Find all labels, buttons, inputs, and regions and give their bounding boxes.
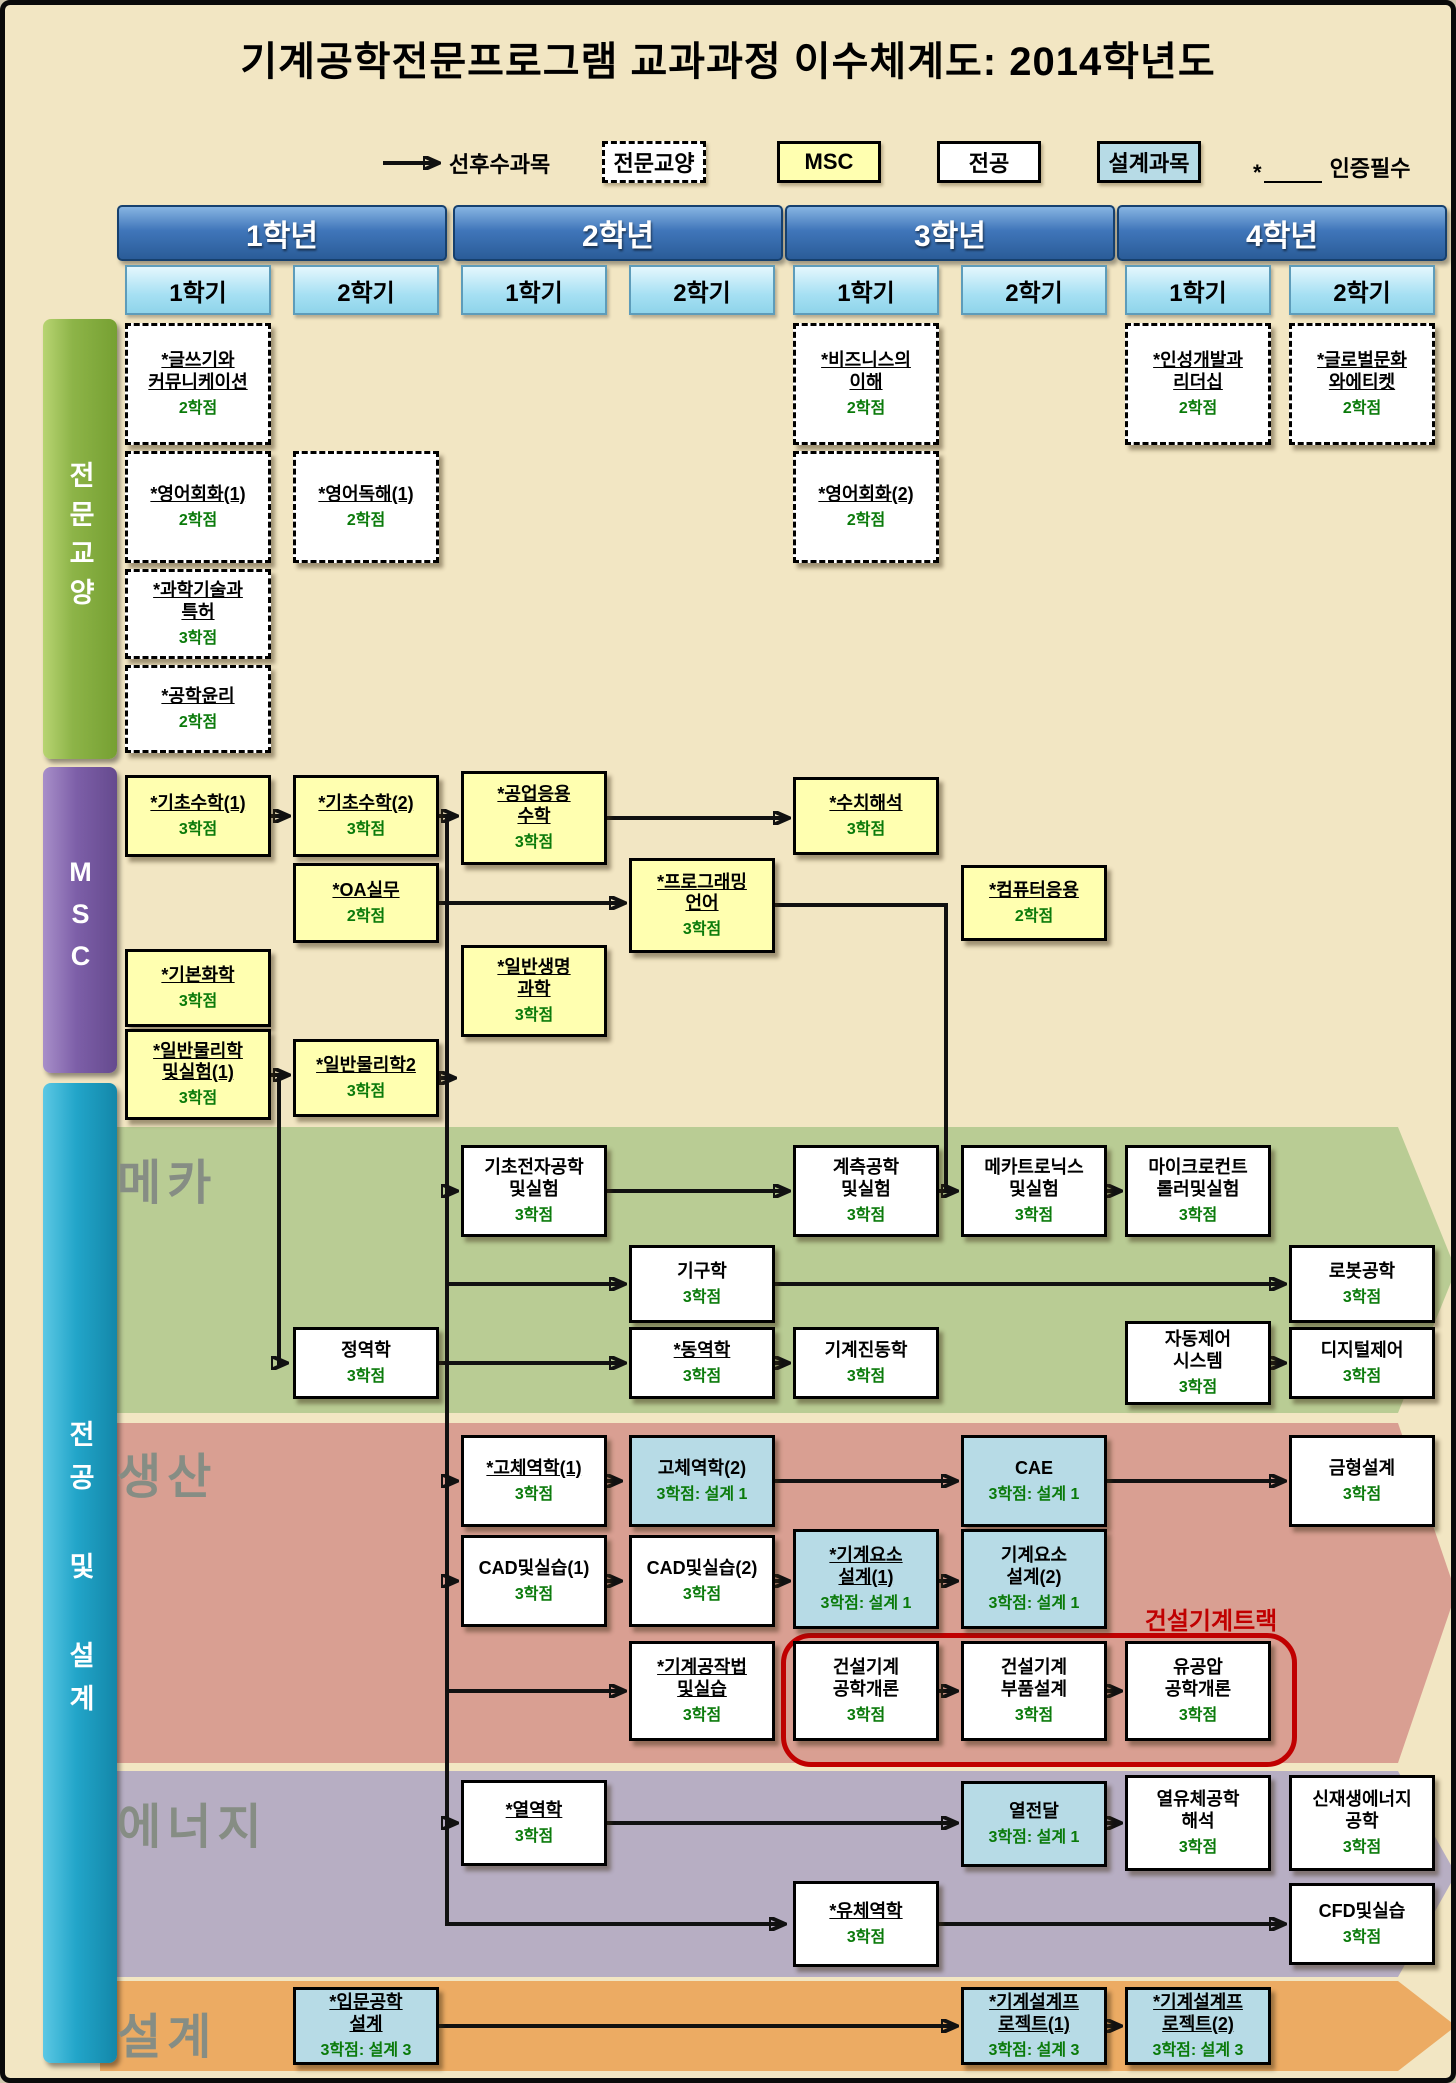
course-box: *입문공학 설계 3학점: 설계 3 xyxy=(293,1987,439,2065)
course-box: *공학윤리 2학점 xyxy=(125,665,271,753)
course-box: 마이크로컨트 롤러및실험 3학점 xyxy=(1125,1145,1271,1237)
legend-msc: MSC xyxy=(777,141,881,183)
course-title: 자동제어 시스템 xyxy=(1165,1329,1231,1371)
course-title: 유공압 공학개론 xyxy=(1165,1657,1231,1699)
course-title: *공업응용 수학 xyxy=(497,784,570,826)
course-box: CAE 3학점: 설계 1 xyxy=(961,1435,1107,1527)
course-credit: 3학점 xyxy=(683,915,721,939)
course-credit: 3학점 xyxy=(847,815,885,839)
course-credit: 3학점 xyxy=(1343,1923,1381,1947)
course-title: 건설기계 공학개론 xyxy=(833,1657,899,1699)
sidebar-label: MSC xyxy=(65,857,96,983)
course-title: *공학윤리 xyxy=(161,686,234,707)
band-label-mecha: 메카 xyxy=(117,1143,217,1213)
course-credit: 3학점 xyxy=(1015,1201,1053,1225)
course-box: 기구학 3학점 xyxy=(629,1245,775,1323)
course-credit: 3학점 xyxy=(179,624,217,648)
course-box: *글쓰기와 커뮤니케이션 2학점 xyxy=(125,323,271,445)
band-label-production: 생산 xyxy=(117,1437,217,1507)
course-box: *과학기술과 특허 3학점 xyxy=(125,569,271,659)
course-credit: 2학점 xyxy=(179,506,217,530)
course-box: *일반물리학2 3학점 xyxy=(293,1039,439,1117)
course-box: 건설기계 부품설계 3학점 xyxy=(961,1641,1107,1741)
course-box: *글로벌문화 와에티켓 2학점 xyxy=(1289,323,1435,445)
course-credit: 3학점: 설계 3 xyxy=(989,2036,1080,2060)
course-box: CFD및실습 3학점 xyxy=(1289,1883,1435,1965)
course-box: 유공압 공학개론 3학점 xyxy=(1125,1641,1271,1741)
course-box: CAD및실습(1) 3학점 xyxy=(461,1535,607,1627)
curriculum-flowchart: 기계공학전문프로그램 교과과정 이수체계도: 2014학년도 선후수과목 전문교… xyxy=(0,0,1456,2083)
course-box: *기계공작법 및실습 3학점 xyxy=(629,1641,775,1741)
course-credit: 2학점 xyxy=(347,506,385,530)
semester-tab-4-2: 2학기 xyxy=(1289,265,1435,315)
course-box: *인성개발과 리더십 2학점 xyxy=(1125,323,1271,445)
course-credit: 2학점 xyxy=(847,506,885,530)
course-title: *고체역학(1) xyxy=(486,1458,581,1479)
course-title: *OA실무 xyxy=(332,880,399,901)
course-credit: 3학점 xyxy=(847,1362,885,1386)
course-box: 열전달 3학점: 설계 1 xyxy=(961,1781,1107,1867)
course-box: 고체역학(2) 3학점: 설계 1 xyxy=(629,1435,775,1527)
course-title: *일반물리학2 xyxy=(316,1055,416,1076)
course-box: *비즈니스의 이해 2학점 xyxy=(793,323,939,445)
course-title: *글쓰기와 커뮤니케이션 xyxy=(148,350,247,392)
course-title: CAD및실습(2) xyxy=(647,1558,758,1579)
semester-tab-2-1: 1학기 xyxy=(461,265,607,315)
course-credit: 2학점 xyxy=(1015,902,1053,926)
course-box: *기계설계프 로젝트(2) 3학점: 설계 3 xyxy=(1125,1987,1271,2065)
band-label-energy: 에너지 xyxy=(117,1787,267,1857)
course-credit: 3학점 xyxy=(1343,1833,1381,1857)
course-box: *수치해석 3학점 xyxy=(793,777,939,855)
course-credit: 3학점 xyxy=(847,1923,885,1947)
course-title: 정역학 xyxy=(341,1340,391,1361)
course-credit: 3학점 xyxy=(179,815,217,839)
course-title: *일반물리학 및실험(1) xyxy=(153,1041,243,1083)
course-credit: 3학점: 설계 1 xyxy=(821,1589,912,1613)
course-credit: 3학점 xyxy=(683,1283,721,1307)
course-credit: 3학점 xyxy=(1343,1480,1381,1504)
course-box: *기계요소 설계(1) 3학점: 설계 1 xyxy=(793,1529,939,1629)
year-header-1: 1학년 xyxy=(117,205,447,261)
course-title: *과학기술과 특허 xyxy=(153,580,243,622)
course-box: 기초전자공학 및실험 3학점 xyxy=(461,1145,607,1237)
course-box: 자동제어 시스템 3학점 xyxy=(1125,1321,1271,1405)
course-credit: 3학점 xyxy=(515,1580,553,1604)
course-credit: 3학점 xyxy=(683,1701,721,1725)
course-credit: 3학점 xyxy=(1179,1701,1217,1725)
course-credit: 2학점 xyxy=(179,708,217,732)
course-credit: 3학점: 설계 1 xyxy=(989,1480,1080,1504)
course-title: *기계설계프 로젝트(1) xyxy=(989,1992,1079,2034)
course-title: *기본화학 xyxy=(161,965,234,986)
course-title: CAD및실습(1) xyxy=(479,1558,590,1579)
course-credit: 3학점: 설계 1 xyxy=(657,1480,748,1504)
course-credit: 3학점 xyxy=(179,987,217,1011)
course-credit: 3학점 xyxy=(1015,1701,1053,1725)
course-credit: 3학점 xyxy=(847,1201,885,1225)
course-title: 마이크로컨트 롤러및실험 xyxy=(1148,1157,1247,1199)
course-title: *프로그래밍 언어 xyxy=(657,872,747,914)
certification-required-label: 인증필수 xyxy=(1330,151,1411,183)
course-box: *프로그래밍 언어 3학점 xyxy=(629,858,775,953)
course-title: 신재생에너지 공학 xyxy=(1312,1789,1411,1831)
course-credit: 3학점 xyxy=(1343,1362,1381,1386)
underline-mark xyxy=(1264,161,1322,183)
course-box: *일반생명 과학 3학점 xyxy=(461,945,607,1037)
course-title: *기초수학(1) xyxy=(150,793,245,814)
sidebar-label: 전문교양 xyxy=(61,461,100,617)
course-title: 기계진동학 xyxy=(825,1340,908,1361)
sidebar-major-and-design: 전공 및 설계 xyxy=(43,1083,117,2063)
course-credit: 3학점 xyxy=(1179,1373,1217,1397)
construction-machinery-track-label: 건설기계트랙 xyxy=(1113,1601,1309,1636)
course-title: 금형설계 xyxy=(1329,1458,1395,1479)
course-credit: 3학점 xyxy=(683,1362,721,1386)
course-box: *동역학 3학점 xyxy=(629,1327,775,1399)
course-box: 디지털제어 3학점 xyxy=(1289,1327,1435,1399)
course-credit: 3학점 xyxy=(847,1701,885,1725)
course-title: *열역학 xyxy=(506,1800,563,1821)
course-credit: 2학점 xyxy=(1179,394,1217,418)
course-credit: 3학점 xyxy=(347,1077,385,1101)
year-header-2: 2학년 xyxy=(453,205,783,261)
course-title: *수치해석 xyxy=(829,793,902,814)
course-box: 금형설계 3학점 xyxy=(1289,1435,1435,1527)
semester-tab-3-1: 1학기 xyxy=(793,265,939,315)
course-credit: 3학점 xyxy=(179,1084,217,1108)
course-title: 열전달 xyxy=(1009,1801,1059,1822)
course-credit: 3학점 xyxy=(515,1201,553,1225)
page-title: 기계공학전문프로그램 교과과정 이수체계도: 2014학년도 xyxy=(5,29,1451,87)
course-title: *비즈니스의 이해 xyxy=(821,350,911,392)
course-credit: 3학점 xyxy=(1179,1201,1217,1225)
course-box: *열역학 3학점 xyxy=(461,1780,607,1866)
course-credit: 3학점: 설계 1 xyxy=(989,1589,1080,1613)
course-title: *입문공학 설계 xyxy=(329,1992,402,2034)
course-box: *기초수학(1) 3학점 xyxy=(125,775,271,857)
year-header-3: 3학년 xyxy=(785,205,1115,261)
course-box: *기본화학 3학점 xyxy=(125,949,271,1027)
semester-tab-2-2: 2학기 xyxy=(629,265,775,315)
course-box: *컴퓨터응용 2학점 xyxy=(961,865,1107,941)
course-box: 메카트로닉스 및실험 3학점 xyxy=(961,1145,1107,1237)
sidebar-label: 전공 및 설계 xyxy=(61,1420,100,1727)
course-credit: 2학점 xyxy=(847,394,885,418)
course-box: *영어회화(2) 2학점 xyxy=(793,451,939,563)
course-box: *공업응용 수학 3학점 xyxy=(461,771,607,865)
semester-tab-1-2: 2학기 xyxy=(293,265,439,315)
course-box: *영어회화(1) 2학점 xyxy=(125,451,271,563)
band-label-design: 설계 xyxy=(117,1997,217,2067)
course-title: *기계공작법 및실습 xyxy=(657,1657,747,1699)
course-title: *기계설계프 로젝트(2) xyxy=(1153,1992,1243,2034)
course-title: *영어회화(1) xyxy=(150,484,245,505)
course-title: 건설기계 부품설계 xyxy=(1001,1657,1067,1699)
course-title: *기계요소 설계(1) xyxy=(829,1545,902,1587)
legend-general-education: 전문교양 xyxy=(602,141,706,183)
course-credit: 3학점 xyxy=(1179,1833,1217,1857)
course-title: *일반생명 과학 xyxy=(497,957,570,999)
legend-certification-required: * 인증필수 xyxy=(1253,143,1411,189)
course-credit: 3학점 xyxy=(347,1362,385,1386)
course-box: *고체역학(1) 3학점 xyxy=(461,1435,607,1527)
course-box: *기초수학(2) 3학점 xyxy=(293,775,439,857)
course-title: 계측공학 및실험 xyxy=(833,1157,899,1199)
course-title: 기초전자공학 및실험 xyxy=(484,1157,583,1199)
course-box: *일반물리학 및실험(1) 3학점 xyxy=(125,1029,271,1120)
course-title: CAE xyxy=(1015,1458,1053,1479)
course-title: 메카트로닉스 및실험 xyxy=(984,1157,1083,1199)
course-box: 정역학 3학점 xyxy=(293,1327,439,1399)
year-header-4: 4학년 xyxy=(1117,205,1447,261)
course-box: *OA실무 2학점 xyxy=(293,863,439,943)
course-box: 계측공학 및실험 3학점 xyxy=(793,1145,939,1237)
course-box: 로봇공학 3학점 xyxy=(1289,1245,1435,1323)
course-credit: 3학점 xyxy=(515,1822,553,1846)
course-title: *인성개발과 리더십 xyxy=(1153,350,1243,392)
course-title: *유체역학 xyxy=(829,1901,902,1922)
course-title: *컴퓨터응용 xyxy=(989,880,1079,901)
sidebar-general-education: 전문교양 xyxy=(43,319,117,759)
course-credit: 3학점 xyxy=(515,828,553,852)
course-credit: 3학점 xyxy=(515,1480,553,1504)
legend-major: 전공 xyxy=(937,141,1041,183)
semester-tab-3-2: 2학기 xyxy=(961,265,1107,315)
course-title: *기초수학(2) xyxy=(318,793,413,814)
course-box: *유체역학 3학점 xyxy=(793,1881,939,1967)
course-credit: 3학점 xyxy=(683,1580,721,1604)
course-title: 로봇공학 xyxy=(1329,1261,1395,1282)
course-title: 열유체공학 해석 xyxy=(1157,1789,1240,1831)
course-box: CAD및실습(2) 3학점 xyxy=(629,1535,775,1627)
course-box: *영어독해(1) 2학점 xyxy=(293,451,439,563)
course-title: *영어회화(2) xyxy=(818,484,913,505)
semester-tab-4-1: 1학기 xyxy=(1125,265,1271,315)
course-credit: 3학점: 설계 3 xyxy=(1153,2036,1244,2060)
course-credit: 2학점 xyxy=(347,902,385,926)
course-credit: 3학점: 설계 3 xyxy=(321,2036,412,2060)
course-box: *기계설계프 로젝트(1) 3학점: 설계 3 xyxy=(961,1987,1107,2065)
course-box: 열유체공학 해석 3학점 xyxy=(1125,1775,1271,1871)
sidebar-msc: MSC xyxy=(43,767,117,1073)
asterisk-mark: * xyxy=(1253,163,1262,183)
course-title: 기계요소 설계(2) xyxy=(1001,1545,1067,1587)
course-credit: 2학점 xyxy=(179,394,217,418)
legend-prerequisite-label: 선후수과목 xyxy=(449,143,550,183)
semester-tab-1-1: 1학기 xyxy=(125,265,271,315)
course-box: 신재생에너지 공학 3학점 xyxy=(1289,1775,1435,1871)
course-title: *동역학 xyxy=(674,1340,731,1361)
course-credit: 3학점: 설계 1 xyxy=(989,1823,1080,1847)
course-title: 디지털제어 xyxy=(1321,1340,1404,1361)
legend-design-course: 설계과목 xyxy=(1097,141,1201,183)
course-box: 기계진동학 3학점 xyxy=(793,1327,939,1399)
course-credit: 3학점 xyxy=(347,815,385,839)
course-title: *글로벌문화 와에티켓 xyxy=(1317,350,1407,392)
course-title: 기구학 xyxy=(677,1261,727,1282)
course-credit: 2학점 xyxy=(1343,394,1381,418)
course-title: CFD및실습 xyxy=(1319,1901,1406,1922)
course-title: *영어독해(1) xyxy=(318,484,413,505)
course-title: 고체역학(2) xyxy=(658,1458,746,1479)
course-box: 기계요소 설계(2) 3학점: 설계 1 xyxy=(961,1529,1107,1629)
course-box: 건설기계 공학개론 3학점 xyxy=(793,1641,939,1741)
course-credit: 3학점 xyxy=(1343,1283,1381,1307)
course-credit: 3학점 xyxy=(515,1001,553,1025)
